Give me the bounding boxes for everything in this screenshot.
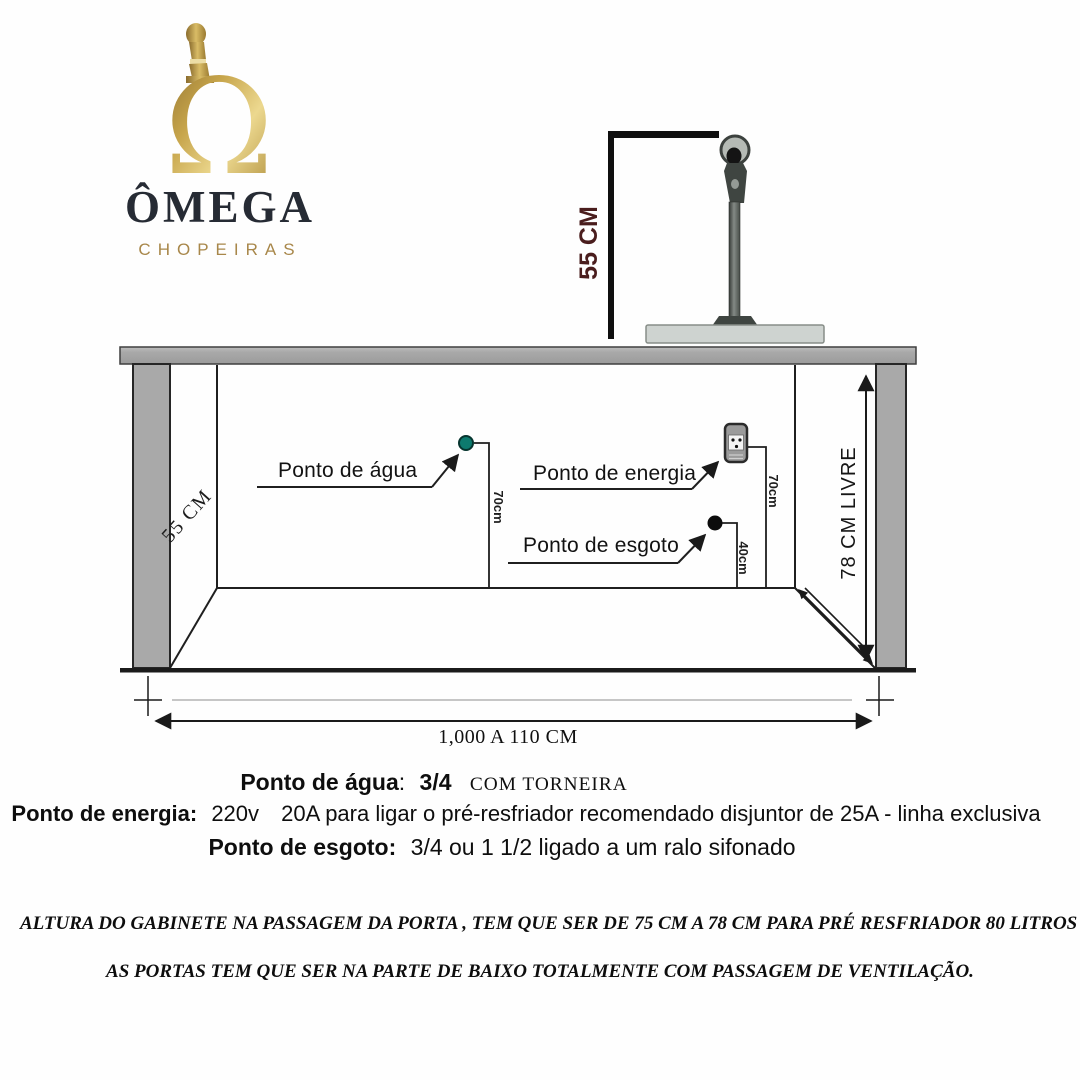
cabinet-structure <box>120 347 916 673</box>
power-outlet-icon <box>725 424 747 462</box>
clearance-label: 78 CM LIVRE <box>838 433 860 593</box>
brand-name: ÔMEGA <box>88 181 352 233</box>
energy-riser-label: 70cm <box>766 461 782 521</box>
spec-water-colon: : <box>399 769 405 795</box>
width-dimension <box>134 676 894 721</box>
spec-drain-label: Ponto de esgoto: <box>208 834 396 860</box>
countertop <box>120 347 916 364</box>
cabinet-width-label: 1,000 A 110 CM <box>363 726 653 749</box>
water-point-dot-icon <box>459 436 473 450</box>
left-pillar <box>133 364 170 668</box>
spec-energy-line: Ponto de energia: 220v 20A para ligar o … <box>0 801 1066 827</box>
note-cabinet-height: ALTURA DO GABINETE NA PASSAGEM DA PORTA … <box>20 913 1060 935</box>
installation-diagram-page: Ω <box>0 0 1080 1080</box>
spec-energy-rest: 20A para ligar o pré-resfriador recomend… <box>281 801 1040 826</box>
depth-diagonal-arrow <box>798 588 873 664</box>
spec-drain-line: Ponto de esgoto: 3/4 ou 1 1/2 ligado a u… <box>0 834 1042 861</box>
spec-water-suffix: COM TORNEIRA <box>470 774 628 795</box>
front-bottom-edge <box>120 668 916 673</box>
note-door-ventilation: AS PORTAS TEM QUE SER NA PARTE DE BAIXO … <box>20 961 1060 983</box>
spec-water-line: Ponto de água: 3/4 COM TORNEIRA <box>0 769 974 796</box>
drain-point-dot-icon <box>708 516 723 531</box>
drain-point-label: Ponto de esgoto <box>523 534 679 558</box>
water-point-label: Ponto de água <box>278 459 417 483</box>
energy-point-label: Ponto de energia <box>533 462 696 486</box>
spec-drain-rest: 3/4 ou 1 1/2 ligado a um ralo sifonado <box>411 834 796 860</box>
brand-subtitle: CHOPEIRAS <box>88 240 352 260</box>
tower-height-label: 55 CM <box>551 205 627 281</box>
spec-water-label: Ponto de água <box>240 769 398 795</box>
drain-riser-label: 40cm <box>736 528 752 588</box>
spec-energy-volts: 220v <box>211 801 259 826</box>
spec-water-value: 3/4 <box>420 769 452 795</box>
spec-energy-label: Ponto de energia: <box>11 801 197 826</box>
right-pillar <box>876 364 906 668</box>
beer-tower-icon <box>646 136 824 343</box>
water-riser-label: 70cm <box>491 477 507 537</box>
